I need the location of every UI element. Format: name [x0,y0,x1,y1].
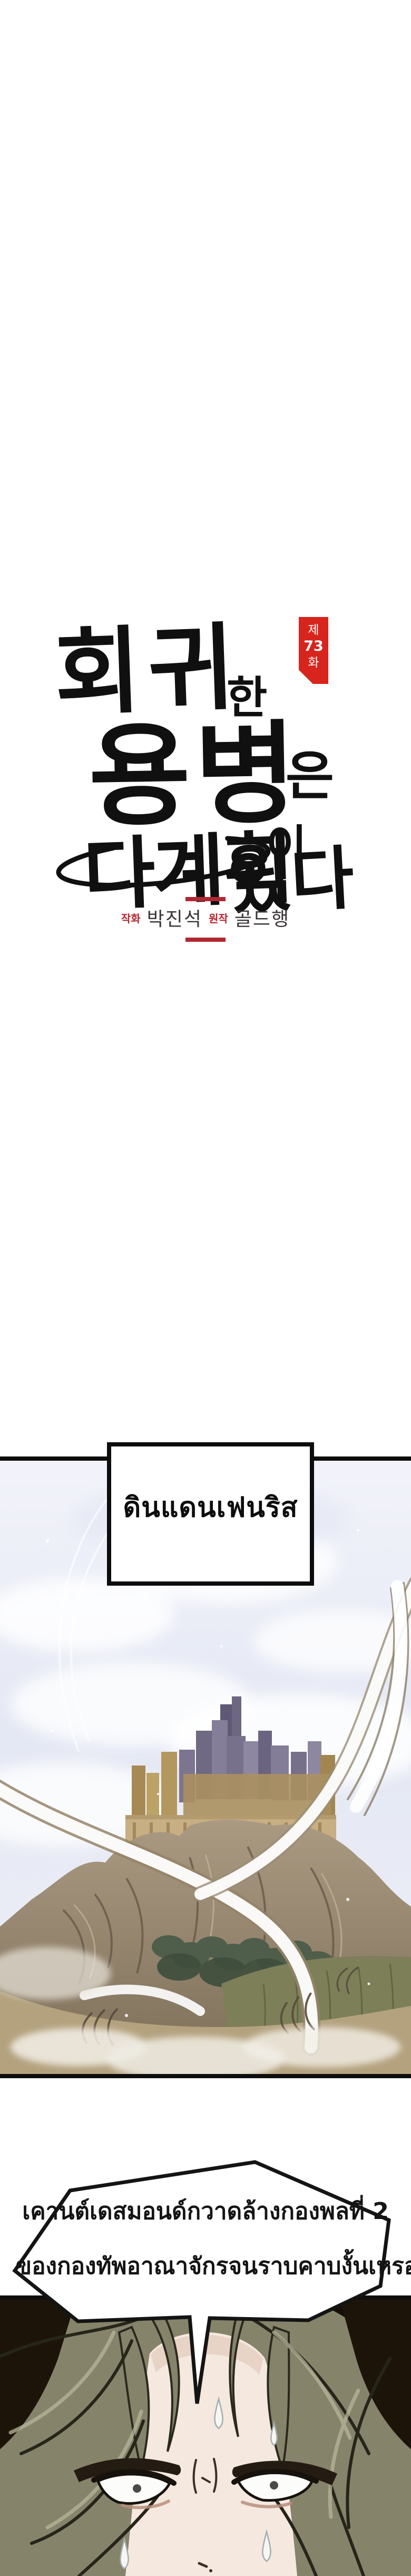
credit-original-author-name: 골드행 [234,904,290,931]
dialogue-bubble: เคานต์เดสมอนด์กวาดล้างกองพลที่ 2 ของกองท… [0,2152,411,2415]
location-label: ดินแดนเฟนริส [123,1485,298,1529]
credit-art-label: 작화 [121,910,141,925]
credits-divider-top [185,897,226,901]
dialogue-bubble-outline [0,2152,411,2415]
credit-artist-name: 박진석 [147,904,202,931]
dialogue-line-2: ของกองทัพอาณาจักรจนราบคาบงั้นเหรอ...!? [16,2251,395,2282]
location-label-box: ดินแดนเฟนริส [107,1442,314,1586]
dialogue-line-1: เคานต์เดสมอนด์กวาดล้างกองพลที่ 2 [21,2196,390,2227]
scene-panel-border-bottom [0,2074,411,2078]
title-part-4: 은 [286,733,334,809]
credits-divider-bottom [185,938,226,942]
credit-original-label: 원작 [209,910,228,925]
title-swash-stroke [50,821,277,900]
series-title-logo: 회귀 한 용병 은 다계획 이 있다 [0,0,411,902]
webtoon-page: 제 73 화 회귀 한 용병 은 다계획 이 있다 작화 박진석 원작 골드행 [0,0,411,2576]
credits-line: 작화 박진석 원작 골드행 [0,903,411,932]
